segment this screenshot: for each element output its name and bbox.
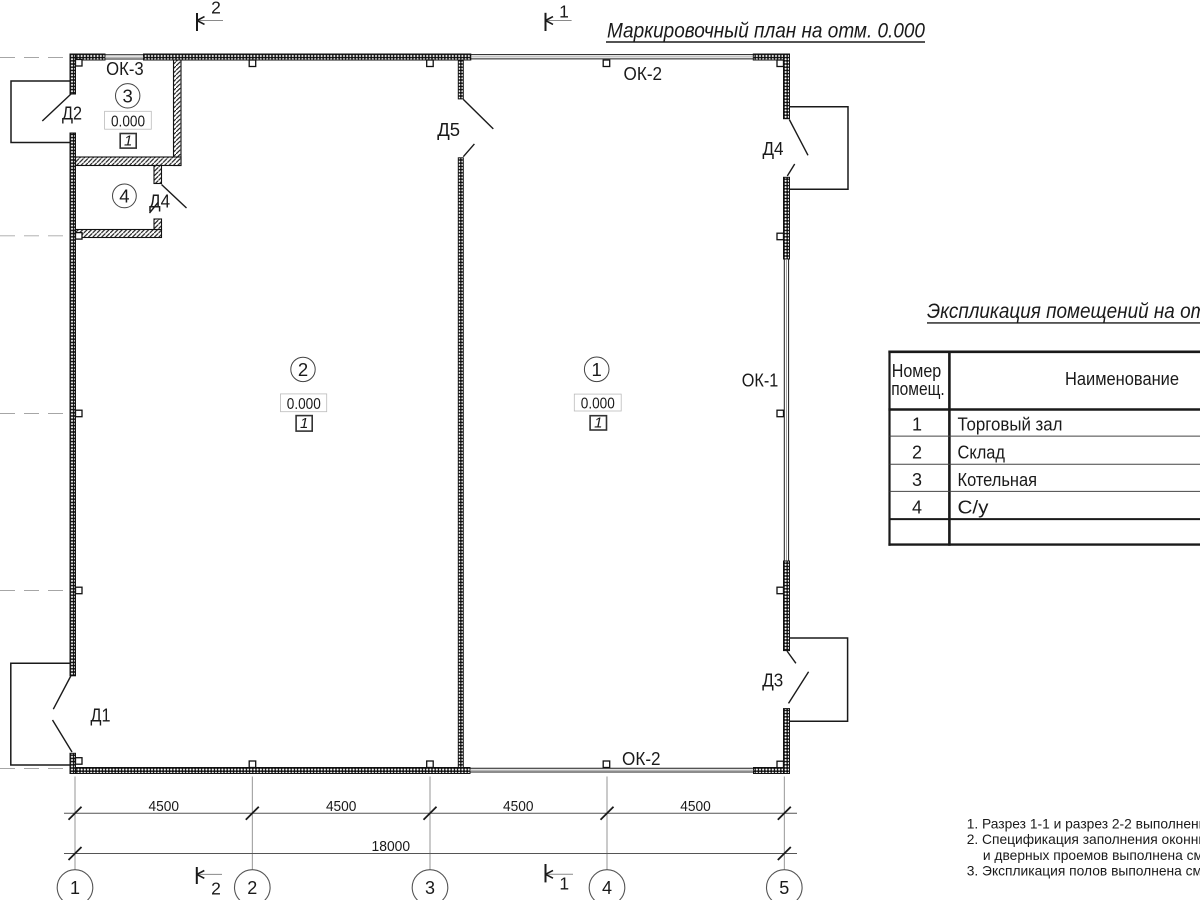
svg-text:1: 1 xyxy=(70,878,80,898)
svg-text:Д4: Д4 xyxy=(763,138,784,159)
svg-text:2: 2 xyxy=(247,878,257,898)
svg-text:1: 1 xyxy=(124,132,132,149)
svg-text:4: 4 xyxy=(602,878,612,898)
svg-text:2: 2 xyxy=(298,359,308,380)
svg-text:0.000: 0.000 xyxy=(111,113,145,130)
svg-text:5: 5 xyxy=(779,878,789,898)
svg-text:помещ.: помещ. xyxy=(891,379,945,399)
svg-text:Д1: Д1 xyxy=(91,705,111,726)
svg-text:1: 1 xyxy=(592,359,602,380)
svg-text:ОК-2: ОК-2 xyxy=(622,748,661,769)
svg-text:Экспликация помещений на отм.: Экспликация помещений на отм. 0.000 xyxy=(927,299,1200,323)
svg-text:2: 2 xyxy=(211,878,221,898)
svg-text:4500: 4500 xyxy=(326,799,357,815)
svg-text:1: 1 xyxy=(300,415,308,432)
svg-text:Д4: Д4 xyxy=(149,190,170,211)
svg-text:ОК-3: ОК-3 xyxy=(106,58,144,79)
svg-text:3: 3 xyxy=(425,878,435,898)
svg-text:1. Разрез 1-1 и разрез 2-2 вып: 1. Разрез 1-1 и разрез 2-2 выполнены см.… xyxy=(967,817,1200,832)
svg-text:0.000: 0.000 xyxy=(287,396,321,413)
svg-text:Маркировочный план на отм. 0.0: Маркировочный план на отм. 0.000 xyxy=(607,19,925,43)
svg-text:Котельная: Котельная xyxy=(958,470,1038,490)
svg-text:С/у: С/у xyxy=(958,498,989,518)
svg-text:2: 2 xyxy=(912,442,922,462)
svg-text:Д3: Д3 xyxy=(762,669,783,690)
svg-text:3. Экспликация полов выполнена: 3. Экспликация полов выполнена см. лист … xyxy=(967,864,1200,879)
svg-text:4: 4 xyxy=(119,185,129,206)
svg-text:4500: 4500 xyxy=(149,799,180,815)
svg-text:4500: 4500 xyxy=(680,799,711,815)
svg-text:1: 1 xyxy=(559,2,569,22)
svg-text:Склад: Склад xyxy=(958,442,1006,462)
svg-text:ОК-2: ОК-2 xyxy=(624,63,663,84)
svg-text:Д5: Д5 xyxy=(437,119,460,140)
svg-text:2: 2 xyxy=(211,0,221,18)
svg-text:1: 1 xyxy=(912,415,922,435)
svg-text:1: 1 xyxy=(594,415,602,432)
svg-text:3: 3 xyxy=(912,470,922,490)
svg-text:4: 4 xyxy=(912,498,922,518)
svg-text:2. Спецификация заполнения око: 2. Спецификация заполнения оконных xyxy=(967,832,1200,847)
svg-text:18000: 18000 xyxy=(372,839,411,855)
svg-text:1: 1 xyxy=(559,874,569,894)
svg-text:4500: 4500 xyxy=(503,799,534,815)
svg-text:ОК-1: ОК-1 xyxy=(742,369,779,390)
svg-text:Торговый зал: Торговый зал xyxy=(958,415,1063,435)
svg-text:0.000: 0.000 xyxy=(581,396,615,413)
svg-text:Д2: Д2 xyxy=(62,103,82,124)
svg-text:Наименование: Наименование xyxy=(1065,369,1179,389)
svg-text:3: 3 xyxy=(123,85,133,106)
svg-text:и дверных проемов выполнена см: и дверных проемов выполнена см. лист 4 xyxy=(983,848,1200,863)
